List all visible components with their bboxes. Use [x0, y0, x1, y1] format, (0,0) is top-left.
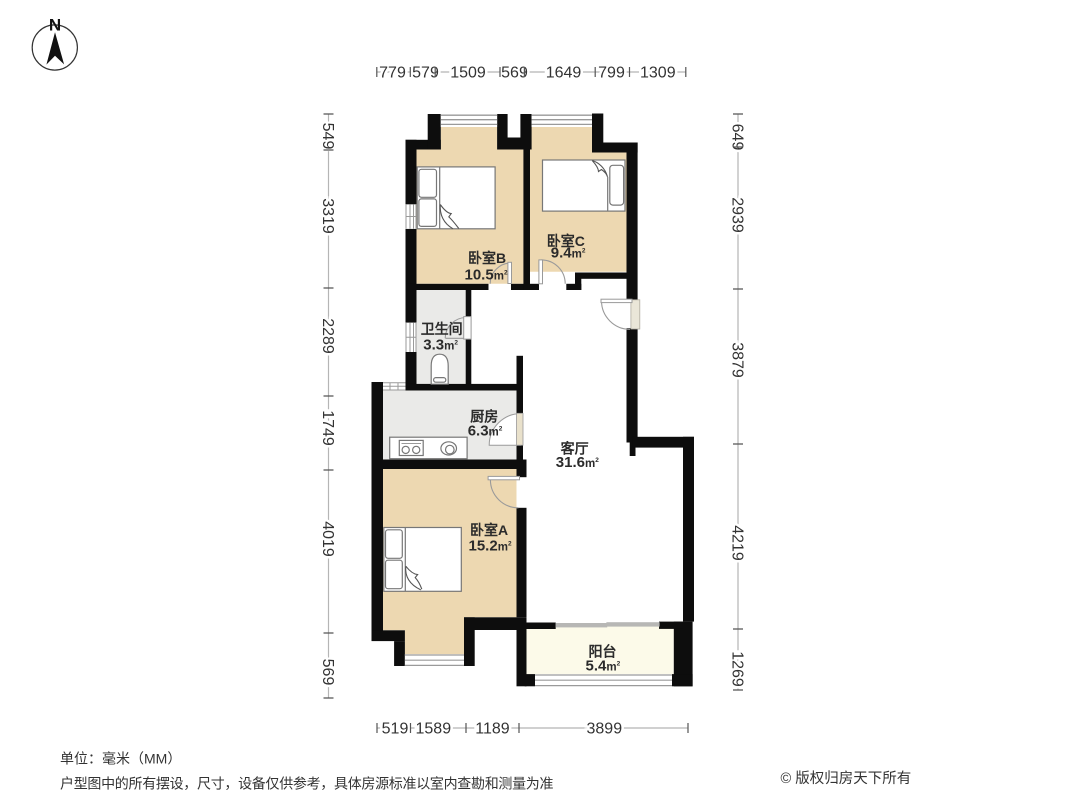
svg-text:1749: 1749: [319, 410, 336, 446]
svg-text:549: 549: [319, 123, 336, 150]
svg-text:1269: 1269: [729, 651, 746, 687]
svg-text:519: 519: [382, 721, 409, 738]
svg-text:户型图中的所有摆设，尺寸，设备仅供参考，具体房源标准以室内查: 户型图中的所有摆设，尺寸，设备仅供参考，具体房源标准以室内查勘和测量为准: [60, 776, 553, 792]
svg-text:卧室A: 卧室A: [470, 522, 508, 538]
svg-text:1649: 1649: [546, 65, 582, 82]
svg-text:N: N: [49, 16, 61, 35]
svg-text:31.6m2: 31.6m2: [556, 454, 599, 471]
svg-text:1189: 1189: [475, 721, 510, 738]
svg-text:2939: 2939: [729, 197, 746, 233]
svg-text:2289: 2289: [319, 318, 336, 354]
svg-text:779: 779: [379, 65, 406, 82]
svg-text:1509: 1509: [450, 65, 486, 82]
svg-text:© 版权归房天下所有: © 版权归房天下所有: [781, 770, 912, 787]
svg-text:1309: 1309: [640, 65, 676, 82]
svg-text:3319: 3319: [319, 198, 336, 234]
svg-text:单位：毫米（MM）: 单位：毫米（MM）: [60, 751, 181, 767]
svg-text:1589: 1589: [416, 721, 452, 738]
svg-text:4219: 4219: [729, 525, 746, 561]
svg-text:799: 799: [598, 65, 625, 82]
svg-text:569: 569: [319, 659, 336, 686]
svg-text:4019: 4019: [319, 521, 336, 557]
svg-text:3879: 3879: [729, 342, 746, 378]
svg-text:3899: 3899: [587, 721, 623, 738]
svg-text:卧室B: 卧室B: [468, 250, 506, 266]
svg-text:卫生间: 卫生间: [421, 321, 463, 337]
